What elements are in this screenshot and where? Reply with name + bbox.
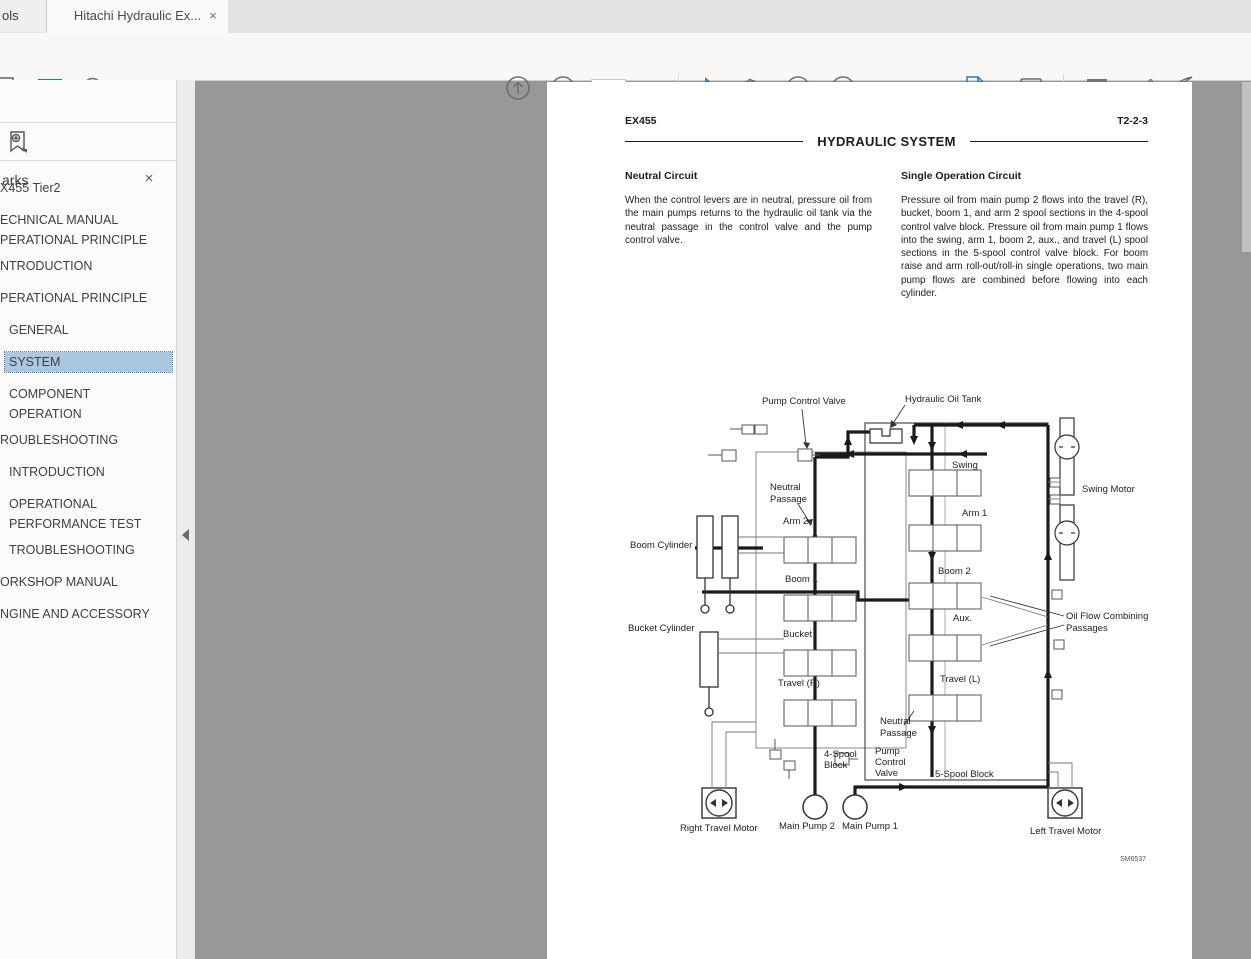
sidebar-item-workshop-manual[interactable]: ORKSHOP MANUAL bbox=[0, 572, 172, 592]
sidebar-item-introduction[interactable]: NTRODUCTION bbox=[0, 256, 172, 276]
diagram-label-hydraulic-oil-tank: Hydraulic Oil Tank bbox=[905, 394, 982, 405]
diagram-label-4-spool-block: 4-Spool bbox=[824, 749, 857, 760]
bookmarks-panel: arks × X455 Tier2 ECHNICAL MANUAL PERATI… bbox=[0, 80, 176, 959]
diagram-label-pump-control-valve-bottom: Valve bbox=[875, 768, 898, 779]
sidebar-item-engine-and-accessory[interactable]: NGINE AND ACCESSORY bbox=[0, 604, 172, 624]
diagram-label-arm1: Arm 1 bbox=[962, 508, 987, 519]
diagram-label-boom1: Boom 1 bbox=[785, 574, 818, 585]
tab-bar: ols Hitachi Hydraulic Ex... × bbox=[0, 0, 1251, 34]
diagram-label-main-pump-1: Main Pump 1 bbox=[842, 821, 898, 832]
diagram-label-oil-flow-combining: Passages bbox=[1066, 623, 1108, 634]
hydraulic-circuit-diagram: Pump Control Valve Hydraulic Oil Tank Ne… bbox=[602, 387, 1162, 877]
sidebar-item-ex455-tier2[interactable]: X455 Tier2 bbox=[0, 178, 172, 198]
diagram-label-main-pump-2: Main Pump 2 bbox=[779, 821, 835, 832]
right-column-body: Pressure oil from main pump 2 flows into… bbox=[901, 194, 1148, 300]
diagram-label-neutral-passage: Neutral bbox=[770, 482, 801, 493]
sidebar-item-general[interactable]: GENERAL bbox=[0, 320, 176, 340]
tab-active-document[interactable]: Hitachi Hydraulic Ex... × bbox=[47, 0, 229, 33]
tab-tools[interactable]: ols bbox=[0, 0, 47, 32]
doc-model-label: EX455 bbox=[625, 115, 657, 127]
previous-page-button[interactable] bbox=[504, 76, 532, 104]
diagram-label-swing: Swing bbox=[952, 460, 978, 471]
collapse-panel-icon[interactable] bbox=[182, 529, 189, 541]
diagram-label-4-spool-block: Block bbox=[824, 760, 847, 771]
section-title-row: HYDRAULIC SYSTEM bbox=[625, 134, 1148, 149]
diagram-label-pump-control-valve-bottom: Control bbox=[875, 757, 906, 768]
diagram-label-pump-control-valve: Pump Control Valve bbox=[762, 396, 846, 407]
expand-current-bookmark-button[interactable] bbox=[8, 130, 30, 161]
title-rule-left bbox=[625, 141, 803, 143]
diagram-label-aux: Aux. bbox=[953, 613, 972, 624]
panel-resize-strip[interactable] bbox=[176, 80, 195, 959]
sidebar-item-troubleshooting-2[interactable]: TROUBLESHOOTING bbox=[0, 540, 176, 560]
diagram-label-travel-r: Travel (R) bbox=[778, 678, 820, 689]
figure-code: SM6537 bbox=[1120, 856, 1146, 863]
sidebar-item-operational-performance-test[interactable]: OPERATIONAL PERFORMANCE TEST bbox=[0, 494, 176, 534]
sidebar-item-system[interactable]: SYSTEM bbox=[5, 352, 172, 372]
sidebar-item-technical-manual[interactable]: ECHNICAL MANUAL PERATIONAL PRINCIPLE bbox=[0, 210, 172, 250]
diagram-label-bucket: Bucket bbox=[783, 629, 812, 640]
left-column-body: When the control levers are in neutral, … bbox=[625, 194, 872, 247]
diagram-label-neutral-passage: Passage bbox=[770, 494, 807, 505]
sidebar-item-introduction-2[interactable]: INTRODUCTION bbox=[0, 462, 176, 482]
section-title: HYDRAULIC SYSTEM bbox=[803, 134, 969, 149]
page-up-icon bbox=[505, 75, 531, 106]
diagram-label-pump-control-valve-bottom: Pump bbox=[875, 746, 900, 757]
diagram-label-right-travel-motor: Right Travel Motor bbox=[680, 823, 758, 834]
right-column-heading: Single Operation Circuit bbox=[901, 170, 1021, 182]
diagram-label-left-travel-motor: Left Travel Motor bbox=[1030, 826, 1101, 837]
doc-page-code: T2-2-3 bbox=[1028, 115, 1148, 127]
diagram-label-arm2: Arm 2 bbox=[783, 516, 808, 527]
title-rule-right bbox=[970, 141, 1148, 143]
diagram-label-oil-flow-combining: Oil Flow Combining bbox=[1066, 611, 1148, 622]
left-column-heading: Neutral Circuit bbox=[625, 170, 697, 182]
pdf-page: EX455 T2-2-3 HYDRAULIC SYSTEM Neutral Ci… bbox=[547, 82, 1192, 959]
sidebar-item-troubleshooting[interactable]: ROUBLESHOOTING bbox=[0, 430, 172, 450]
tab-close-icon[interactable]: × bbox=[206, 0, 220, 32]
panel-divider bbox=[0, 122, 176, 123]
bookmark-target-icon bbox=[8, 143, 30, 160]
vertical-scrollbar-thumb[interactable] bbox=[1242, 82, 1251, 252]
tab-title: Hitachi Hydraulic Ex... bbox=[74, 8, 201, 23]
diagram-label-neutral-passage-bottom: Neutral bbox=[880, 716, 911, 727]
diagram-label-boom-cylinder: Boom Cylinder bbox=[630, 540, 692, 551]
sidebar-item-component-operation[interactable]: COMPONENT OPERATION bbox=[0, 384, 176, 424]
panel-divider bbox=[0, 160, 176, 161]
diagram-label-travel-l: Travel (L) bbox=[940, 674, 980, 685]
diagram-label-neutral-passage-bottom: Passage bbox=[880, 728, 917, 739]
toolbar: 49 / 878 71.1% bbox=[0, 33, 1251, 81]
diagram-label-boom2: Boom 2 bbox=[938, 566, 971, 577]
diagram-label-swing-motor: Swing Motor bbox=[1082, 484, 1135, 495]
diagram-label-5-spool-block: 5-Spool Block bbox=[935, 769, 994, 780]
sidebar-item-operational-principle[interactable]: PERATIONAL PRINCIPLE bbox=[0, 288, 172, 308]
diagram-label-bucket-cylinder: Bucket Cylinder bbox=[628, 623, 695, 634]
